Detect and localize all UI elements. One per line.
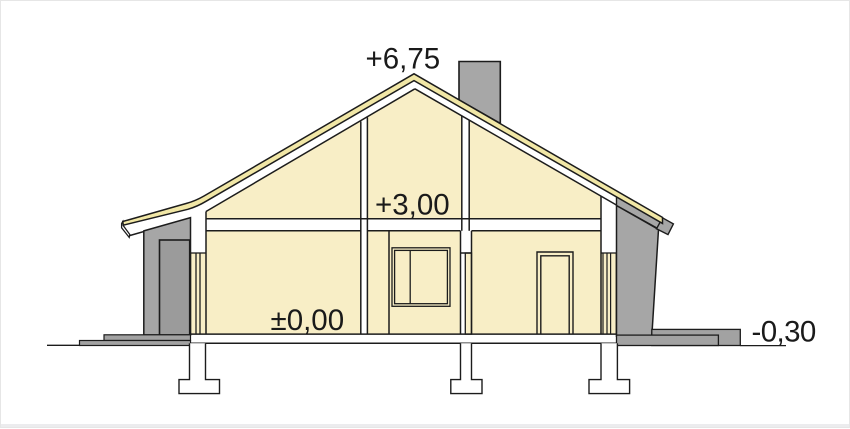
svg-text:-0,30: -0,30 (752, 316, 816, 349)
svg-text:+3,00: +3,00 (375, 189, 450, 222)
svg-text:±0,00: ±0,00 (271, 304, 345, 337)
svg-text:+6,75: +6,75 (366, 43, 441, 76)
